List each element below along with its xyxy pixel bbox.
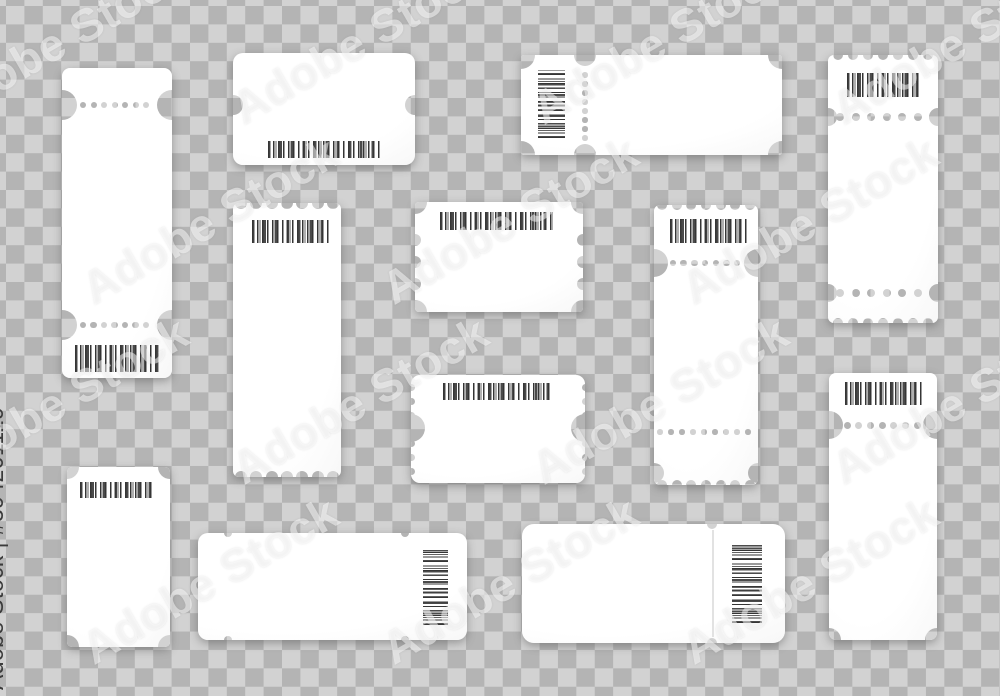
perforation-dot xyxy=(734,260,741,267)
scallop-cutout xyxy=(833,55,843,60)
notch-cutout xyxy=(233,95,243,115)
scallop-cutout xyxy=(266,203,278,209)
notch-cutout xyxy=(411,414,425,442)
scallop-cutout xyxy=(411,454,415,461)
scallop-cutout xyxy=(686,480,696,485)
ticket-rounded-top xyxy=(233,53,415,165)
scallop-cutout xyxy=(893,55,903,60)
scallop-cutout xyxy=(672,480,682,485)
scallop-cutout xyxy=(577,278,583,290)
scallop-cutout xyxy=(701,205,711,210)
notch-cutout xyxy=(571,300,583,312)
scallop-cutout xyxy=(716,205,726,210)
perforation-dot xyxy=(855,422,862,429)
barcode xyxy=(845,382,922,405)
notch-cutout xyxy=(62,310,77,340)
perforation-dot xyxy=(670,260,677,267)
perforation-dot xyxy=(867,422,874,429)
scallop-cutout xyxy=(686,205,696,210)
perforation-dot xyxy=(133,102,139,108)
perforation-dot xyxy=(582,117,588,123)
barcode xyxy=(80,482,155,498)
perforation-dot xyxy=(668,429,674,435)
notch-cutout xyxy=(401,636,409,640)
scallop-cutout xyxy=(415,256,421,268)
scallop-cutout xyxy=(878,318,888,323)
perforation-dot xyxy=(723,260,730,267)
scallop-cutout xyxy=(327,203,339,209)
scallop-cutout xyxy=(235,203,247,209)
perforation-dot xyxy=(701,429,707,435)
perforation-dot xyxy=(890,422,897,429)
scallop-cutout xyxy=(848,318,858,323)
perforation-dot xyxy=(143,322,150,329)
perforation-dot xyxy=(929,113,937,121)
perforation-dot xyxy=(745,429,751,435)
notch-cutout xyxy=(829,411,843,439)
scallop-cutout xyxy=(730,205,740,210)
scallop-cutout xyxy=(582,468,586,475)
scallop-cutout xyxy=(863,318,873,323)
notch-cutout xyxy=(158,467,170,479)
scallop-cutout xyxy=(582,454,586,461)
perforation-dot xyxy=(657,429,663,435)
ticket-wide-bottom-right xyxy=(522,524,785,643)
scallop-cutout xyxy=(327,471,339,477)
perforation-dot xyxy=(582,99,588,105)
notch-cutout xyxy=(768,55,782,69)
tickets-layer xyxy=(0,0,1000,696)
stock-id-label: Adobe Stock | #394201119 xyxy=(0,407,9,690)
notch-cutout xyxy=(224,533,232,537)
scallop-cutout xyxy=(582,384,586,391)
scallop-cutout xyxy=(250,203,262,209)
scallop-cutout xyxy=(833,318,843,323)
barcode xyxy=(538,70,565,138)
scallop-cutout xyxy=(250,471,262,477)
perforation-dot xyxy=(867,289,875,297)
perforation-dot xyxy=(867,113,875,121)
ticket-small-bottom-left xyxy=(67,467,170,647)
barcode xyxy=(732,542,762,623)
ticket-tall-mid-left xyxy=(233,203,341,477)
perforation-dot xyxy=(582,126,588,132)
ticket-tall-right-top xyxy=(828,55,938,323)
perforation-dot xyxy=(844,422,851,429)
scallop-cutout xyxy=(908,55,918,60)
perforation-dot xyxy=(101,322,108,329)
scallop-cutout xyxy=(235,471,247,477)
perforation-dot xyxy=(914,289,922,297)
perforation-dot xyxy=(902,422,909,429)
ticket-tall-right-mid xyxy=(829,373,937,640)
scallop-cutout xyxy=(296,471,308,477)
ticket-wide-top xyxy=(521,55,782,155)
scallop-cutout xyxy=(908,318,918,323)
scallop-cutout xyxy=(312,471,324,477)
notch-cutout xyxy=(158,635,170,647)
scallop-cutout xyxy=(411,398,415,405)
perforation-dot xyxy=(111,322,118,329)
perforation-dot xyxy=(90,322,97,329)
scallop-cutout xyxy=(923,318,933,323)
perforation-dot xyxy=(723,429,729,435)
perforation-dot xyxy=(852,289,860,297)
notch-cutout xyxy=(405,95,415,115)
ticket-tall-mid-right xyxy=(654,205,758,485)
scallop-cutout xyxy=(415,234,421,246)
perforation-dot xyxy=(582,108,588,114)
perforation-dot xyxy=(132,322,139,329)
perforation-dot xyxy=(679,429,685,435)
perforation-dot xyxy=(836,289,844,297)
perforation-dot xyxy=(929,289,937,297)
perforation-dot xyxy=(879,422,886,429)
notch-cutout xyxy=(62,90,77,120)
notch-cutout xyxy=(829,628,841,640)
notch-cutout xyxy=(157,310,172,340)
notch-cutout xyxy=(415,300,427,312)
notch-cutout xyxy=(67,467,79,479)
barcode xyxy=(75,345,160,372)
perforation-dot xyxy=(898,113,906,121)
scallop-cutout xyxy=(923,55,933,60)
scallop-cutout xyxy=(281,203,293,209)
stock-image-canvas: { "watermark": { "label": "Adobe Stock",… xyxy=(0,0,1000,696)
scallop-cutout xyxy=(312,203,324,209)
notch-cutout xyxy=(224,636,232,640)
notch-cutout xyxy=(67,635,79,647)
scallop-cutout xyxy=(730,480,740,485)
perforation-dot xyxy=(582,72,588,78)
perforation-dot xyxy=(80,102,86,108)
perforation-dot xyxy=(836,113,844,121)
barcode xyxy=(252,220,330,243)
perforation-dot xyxy=(122,102,128,108)
scallop-cutout xyxy=(582,398,586,405)
barcode xyxy=(268,141,380,158)
scallop-cutout xyxy=(266,471,278,477)
scallop-cutout xyxy=(701,480,711,485)
scallop-cutout xyxy=(657,205,667,210)
notch-cutout xyxy=(744,249,758,277)
scallop-cutout xyxy=(281,471,293,477)
perforation-dot xyxy=(702,260,709,267)
notch-cutout xyxy=(521,55,535,69)
perforation-dot xyxy=(914,422,921,429)
perforation-dot xyxy=(914,113,922,121)
perforation-dot xyxy=(883,289,891,297)
perforation-dot xyxy=(582,135,588,141)
ticket-tall-left xyxy=(62,68,172,378)
notch-cutout xyxy=(707,638,717,643)
barcode xyxy=(440,212,553,230)
scallop-cutout xyxy=(672,205,682,210)
perforation-dot xyxy=(690,429,696,435)
perforation-dot xyxy=(691,260,698,267)
scallop-cutout xyxy=(577,234,583,246)
notch-cutout xyxy=(923,411,937,439)
barcode xyxy=(847,73,920,97)
notch-cutout xyxy=(571,202,583,214)
perforation-dot xyxy=(713,260,720,267)
notch-cutout xyxy=(571,414,585,442)
notch-cutout xyxy=(707,524,717,529)
notch-cutout xyxy=(157,90,172,120)
perforation-dot xyxy=(883,113,891,121)
ticket-small-center xyxy=(415,202,583,312)
perforation-dot xyxy=(898,289,906,297)
ticket-wide-bottom-left xyxy=(198,533,467,640)
scallop-cutout xyxy=(577,256,583,268)
notch-cutout xyxy=(768,141,782,155)
scallop-cutout xyxy=(878,55,888,60)
perforation-dot xyxy=(101,102,107,108)
perforation-dot xyxy=(91,102,97,108)
notch-cutout xyxy=(925,628,937,640)
perforation-dot xyxy=(680,260,687,267)
scallop-cutout xyxy=(893,318,903,323)
perforation-dot xyxy=(112,102,118,108)
perforation-dot xyxy=(734,429,740,435)
scallop-cutout xyxy=(863,55,873,60)
scallop-cutout xyxy=(745,205,755,210)
ticket-small-center-2 xyxy=(411,375,585,483)
notch-cutout xyxy=(574,144,596,155)
notch-cutout xyxy=(415,202,427,214)
barcode xyxy=(423,550,448,625)
barcode xyxy=(670,219,747,243)
scallop-cutout xyxy=(411,468,415,475)
scallop-cutout xyxy=(848,55,858,60)
notch-cutout xyxy=(401,533,409,537)
perforation-dot xyxy=(582,90,588,96)
notch-cutout xyxy=(574,55,596,66)
perforation-dot xyxy=(122,322,129,329)
notch-cutout xyxy=(654,249,668,277)
scallop-cutout xyxy=(411,384,415,391)
perforation-dot xyxy=(582,81,588,87)
scallop-cutout xyxy=(415,278,421,290)
scallop-cutout xyxy=(716,480,726,485)
stub-seam xyxy=(712,530,714,637)
perforation-dot xyxy=(143,102,149,108)
barcode xyxy=(443,383,553,400)
scallop-cutout xyxy=(296,203,308,209)
perforation-dot xyxy=(712,429,718,435)
perforation-dot xyxy=(80,322,87,329)
perforation-dot xyxy=(852,113,860,121)
notch-cutout xyxy=(521,141,535,155)
